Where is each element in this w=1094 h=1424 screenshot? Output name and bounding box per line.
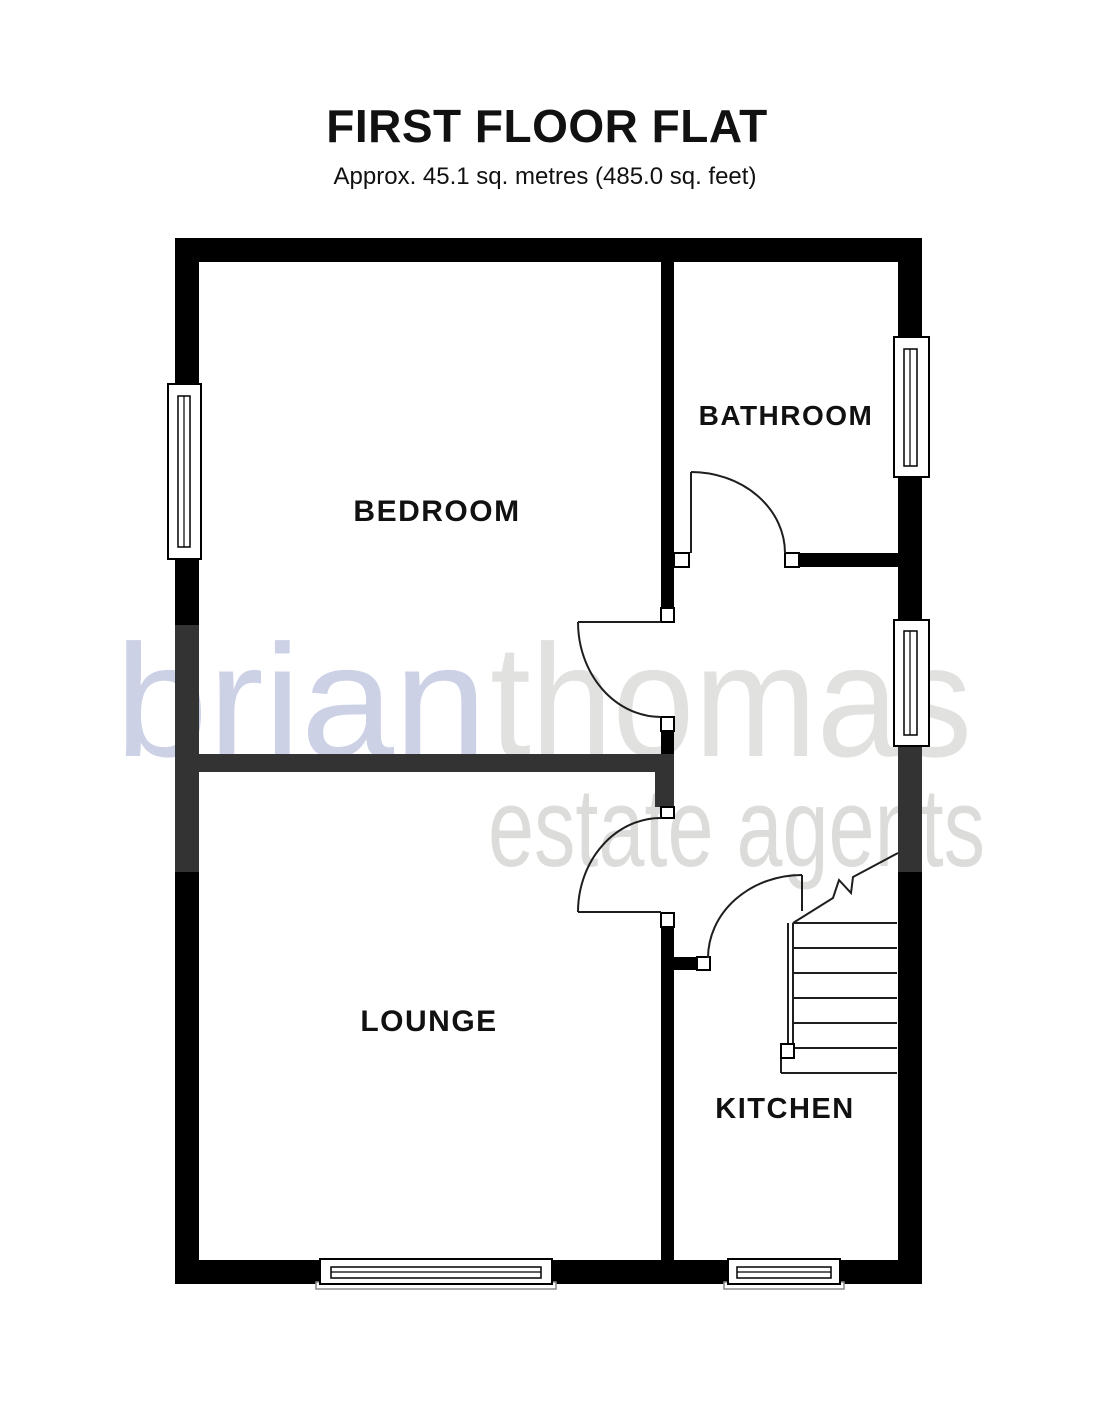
jamb-bathroom-door-right <box>785 553 799 567</box>
watermark: brian thomas estate agents <box>115 611 985 890</box>
window-hall-right <box>894 620 929 746</box>
wall-kitchen-west <box>661 927 674 1260</box>
wall-bathroom-south <box>799 553 898 567</box>
room-label-bathroom: BATHROOM <box>699 400 874 431</box>
stair-newel-post <box>781 1044 794 1058</box>
jamb-bedroom-door-top <box>661 608 674 622</box>
jamb-lounge-door-bottom <box>661 913 674 927</box>
wall-top <box>175 238 922 262</box>
jamb-bathroom-door-left <box>674 553 689 567</box>
window-bedroom-left <box>168 384 201 559</box>
room-label-bedroom: BEDROOM <box>353 495 520 528</box>
wall-left-lower <box>175 872 199 1260</box>
page-subtitle: Approx. 45.1 sq. metres (485.0 sq. feet) <box>334 163 757 190</box>
wall-kitchen-door-stub <box>674 957 697 970</box>
wall-bathroom-west <box>661 262 674 608</box>
wall-hall-west-stub <box>661 731 674 754</box>
window-lounge-bottom <box>316 1259 556 1289</box>
wall-right-lower <box>898 872 922 1260</box>
jamb-bedroom-door-bottom <box>661 717 674 731</box>
wall-right-shared <box>898 747 922 872</box>
jamb-kitchen-door-left <box>697 957 710 970</box>
wall-divider-stub <box>655 772 674 807</box>
page-title: FIRST FLOOR FLAT <box>326 100 768 152</box>
window-bathroom-right <box>894 337 929 477</box>
floorplan-canvas: FIRST FLOOR FLAT Approx. 45.1 sq. metres… <box>0 0 1094 1424</box>
wall-bedroom-lounge-divider <box>199 754 674 772</box>
door-bathroom <box>691 472 785 553</box>
wall-left-shared <box>175 625 199 872</box>
room-label-lounge: LOUNGE <box>360 1005 497 1038</box>
floorplan-page: FIRST FLOOR FLAT Approx. 45.1 sq. metres… <box>0 0 1094 1424</box>
room-label-kitchen: KITCHEN <box>715 1093 854 1125</box>
window-kitchen-bottom <box>724 1259 844 1289</box>
jamb-lounge-door-top <box>661 807 674 818</box>
